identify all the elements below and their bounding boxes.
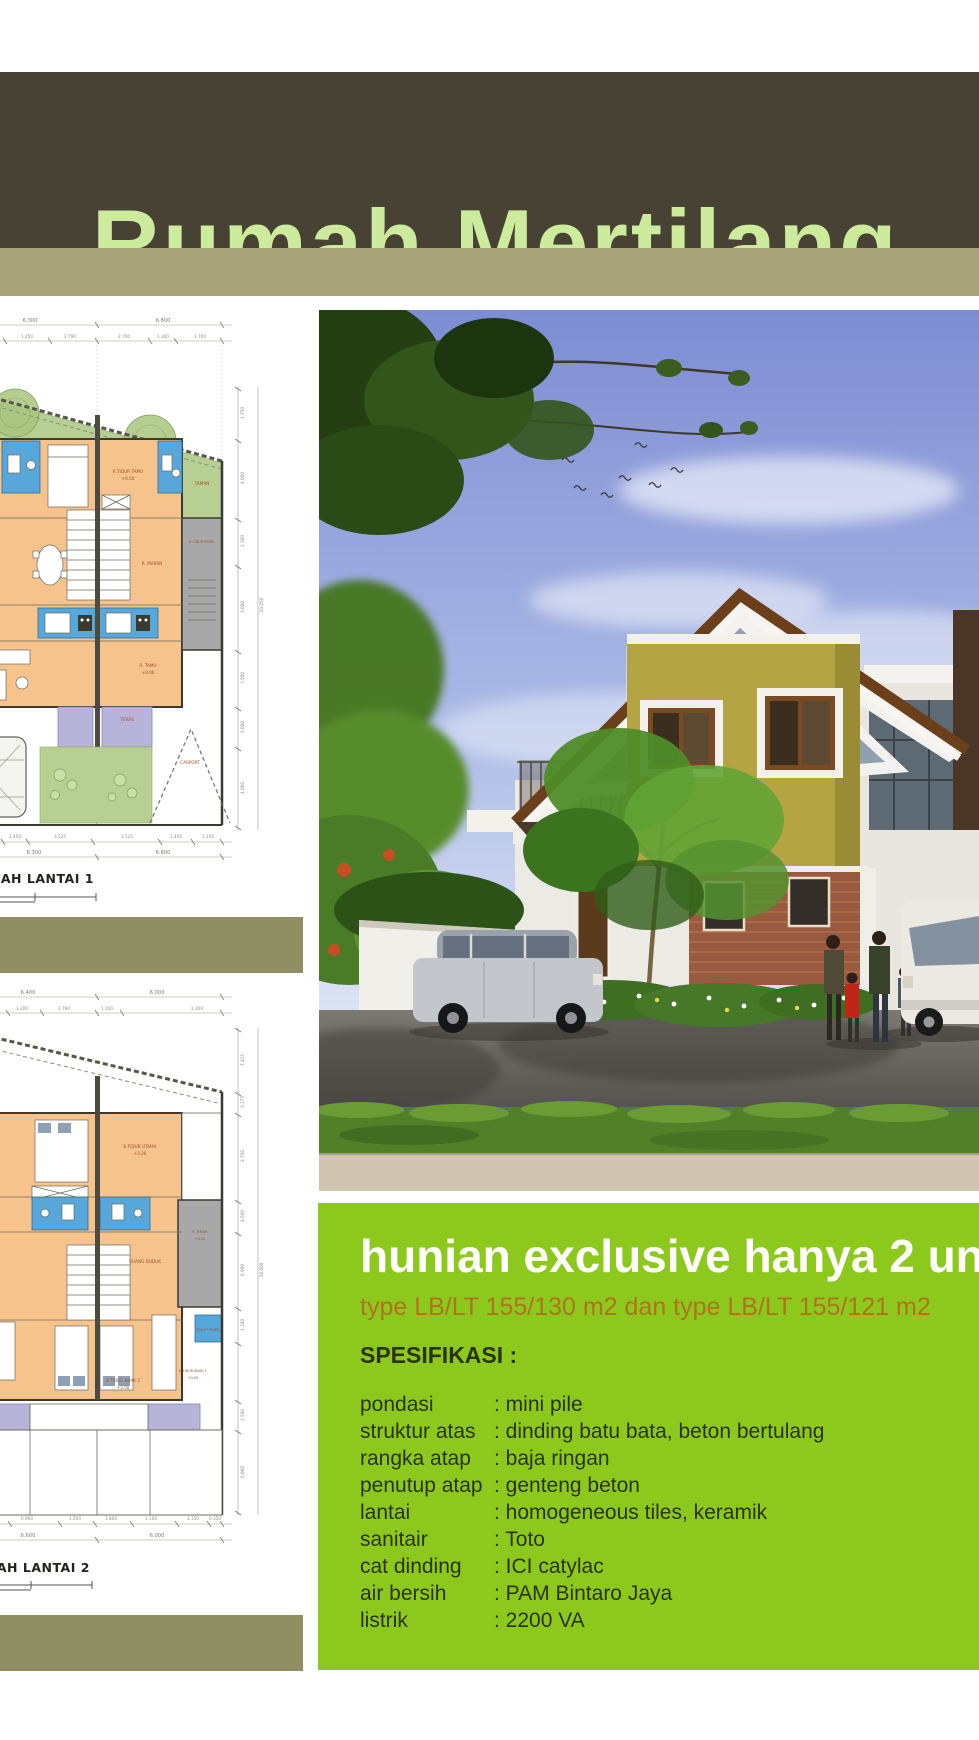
room-label: TERAS [119,717,134,722]
house-rendering-photo [319,310,979,1191]
room-label: +0.50 [122,476,135,481]
plan-title: DENAH LANTAI 2 [0,1560,90,1575]
spec-label: penutup atap [360,1472,494,1499]
spec-label: pondasi [360,1391,494,1418]
header-accent-strip [0,248,979,296]
spec-value: : ICI catylac [494,1553,604,1580]
dimension-label: 0.900 [240,1264,245,1276]
dimension-label: 4.600 [240,1210,245,1222]
dimension-label: 6.000 [240,1466,245,1478]
spec-value: : baja ringan [494,1445,610,1472]
dimension-label: 1.500 [240,1409,245,1421]
promo-subheadline: type LB/LT 155/130 m2 dan type LB/LT 155… [360,1293,931,1322]
plan2-dims-right: 7.425 3.175 2.750 4.600 0.900 1.100 1.50… [235,1028,264,1515]
dimension-label: 1.800 [105,1516,117,1521]
dimension-label: 2.000 [240,721,245,733]
spec-row: air bersih: PAM Bintaro Jaya [360,1580,824,1607]
spec-row: rangka atap: baja ringan [360,1445,824,1472]
spec-label: sanitair [360,1526,494,1553]
dimension-label: 2.700 [118,334,130,339]
dimension-label: 2.790 [58,1006,70,1011]
spec-row: lantai: homogeneous tiles, keramik [360,1499,824,1526]
floor-plan-lantai-2: 6.400 6.000 1.200 2.790 1.100 2.300 [0,970,310,1630]
dimension-label: 4.000 [240,472,245,484]
spec-value: : dinding batu bata, beton bertulang [494,1418,824,1445]
dimension-label: 6.000 [150,990,165,996]
room-label: R. MAKAN [142,561,163,566]
room-label: R. TAMU [139,663,156,668]
room-label: K.TIDUR PEMB. [189,540,214,544]
dimension-label: 1.200 [16,1006,28,1011]
dimension-label: 2.790 [64,334,76,339]
dimension-label: 6.300 [27,850,42,856]
dimension-label: 1.200 [69,1516,81,1521]
room-label: K.TIDUR ANAK 2 [106,1378,140,1383]
child-red-jacket [845,984,859,1018]
spec-label: cat dinding [360,1553,494,1580]
dimension-label: 1.700 [194,334,206,339]
dimension-label: 6.800 [156,850,171,856]
plan-car [0,737,26,817]
grass-verge [319,1101,979,1153]
dimension-label: 2.300 [240,535,245,547]
spec-row: cat dinding: ICI catylac [360,1553,824,1580]
spec-label: air bersih [360,1580,494,1607]
plan-title: DENAH LANTAI 1 [0,871,94,886]
dimension-label: 7.425 [240,1054,245,1066]
spec-row: penutup atap: genteng beton [360,1472,824,1499]
promo-headline: hunian exclusive hanya 2 unit [360,1233,979,1279]
spec-value: : mini pile [494,1391,583,1418]
spec-value: : homogeneous tiles, keramik [494,1499,767,1526]
scale-bar [0,1581,92,1590]
spec-row: sanitair: Toto [360,1526,824,1553]
dimension-label: 3.000 [240,601,245,613]
dimension-label: 1.250 [21,334,33,339]
dimension-label: 1.150 [187,1516,199,1521]
spec-value: : genteng beton [494,1472,640,1499]
room-label: +0.00 [142,670,155,675]
dimension-label: 6.600 [21,1533,36,1539]
sidewalk [319,1153,979,1191]
spec-list: pondasi: mini pile struktur atas: dindin… [360,1391,824,1634]
dimension-label: 1.100 [101,1006,113,1011]
ground-window [789,878,829,926]
spec-row: struktur atas: dinding batu bata, beton … [360,1418,824,1445]
olive-divider-1 [0,917,303,973]
spec-row: listrik: 2200 VA [360,1607,824,1634]
dimension-label: 20.600 [259,1262,264,1277]
room-label: K.TIDUR UTAMA [123,1144,156,1149]
dimension-label: 4.000 [240,782,245,794]
plan2-house [0,1076,222,1515]
dimension-label: 1.150 [202,834,214,839]
flyer-canvas: Rumah Mertilang 6.300 6.800 1.250 2.790 … [0,0,979,1740]
plan1-dims-right: 1.750 4.000 2.300 3.000 1.500 2.000 4.00… [235,387,264,830]
olive-divider-2 [0,1615,303,1671]
dimension-label: 0.900 [21,1516,33,1521]
dimension-label: 3.525 [54,834,66,839]
room-label: K.TIDUR TAMU [113,469,143,474]
dimension-label: 0.350 [209,1516,221,1521]
promo-panel: hunian exclusive hanya 2 unit type LB/LT… [318,1203,979,1670]
dimension-label: 2.750 [240,1150,245,1162]
dimension-label: 6.300 [23,318,38,324]
room-label: K.TIDUR ANAK 1 [179,1369,207,1373]
dimension-label: 6.800 [156,318,171,324]
scale-bar [0,893,96,902]
dimension-label: 2.450 [9,834,21,839]
dimension-label: 2.450 [170,834,182,839]
header-bar: Rumah Mertilang [0,72,979,248]
room-label: TOILET PEMB. [195,1328,219,1332]
upper-window [757,688,843,778]
dimension-label: 1.100 [240,1319,245,1331]
dimension-label: 6.400 [21,990,36,996]
plan1-front: CARPORT [0,707,230,823]
spec-value: : 2200 VA [494,1607,585,1634]
spec-label: struktur atas [360,1418,494,1445]
spec-value: : PAM Bintaro Jaya [494,1580,672,1607]
party-wall [95,415,100,747]
dimension-label: 20.050 [259,597,264,612]
room-label: CARPORT [180,760,200,765]
spec-row: pondasi: mini pile [360,1391,824,1418]
room-label: R. JEMUR [192,1230,208,1234]
room-label: +3.50 [117,1385,130,1390]
floor-plan-lantai-1: 6.300 6.800 1.250 2.790 2.700 1.300 1.70… [0,305,310,917]
room-label: RUANG DUDUK [129,1259,161,1264]
spec-label: listrik [360,1607,494,1634]
plan2-dims-bottom: 0.900 1.200 1.800 1.100 1.150 0.350 6.60… [0,1516,232,1543]
spec-label: rangka atap [360,1445,494,1472]
dimension-label: 6.000 [150,1533,165,1539]
dimension-label: 1.500 [240,672,245,684]
dimension-label: 3.525 [121,834,133,839]
dimension-label: 2.300 [191,1006,203,1011]
plan1-dims-bottom: 2.450 3.525 3.525 2.450 1.150 6.300 6.80… [0,834,232,860]
room-label: TAMAN [194,481,210,486]
room-label: +3.20 [134,1151,147,1156]
spec-value: : Toto [494,1526,545,1553]
room-label: +3.20 [195,1237,205,1241]
plan2-dims-top: 6.400 6.000 1.200 2.790 1.100 2.300 [0,990,232,1016]
dimension-label: 1.300 [157,334,169,339]
spec-title: SPESIFIKASI : [360,1342,517,1369]
dimension-label: 1.750 [240,407,245,419]
dimension-label: 3.175 [240,1096,245,1108]
room-label: +3.20 [188,1376,198,1380]
dimension-label: 1.100 [145,1516,157,1521]
spec-label: lantai [360,1499,494,1526]
